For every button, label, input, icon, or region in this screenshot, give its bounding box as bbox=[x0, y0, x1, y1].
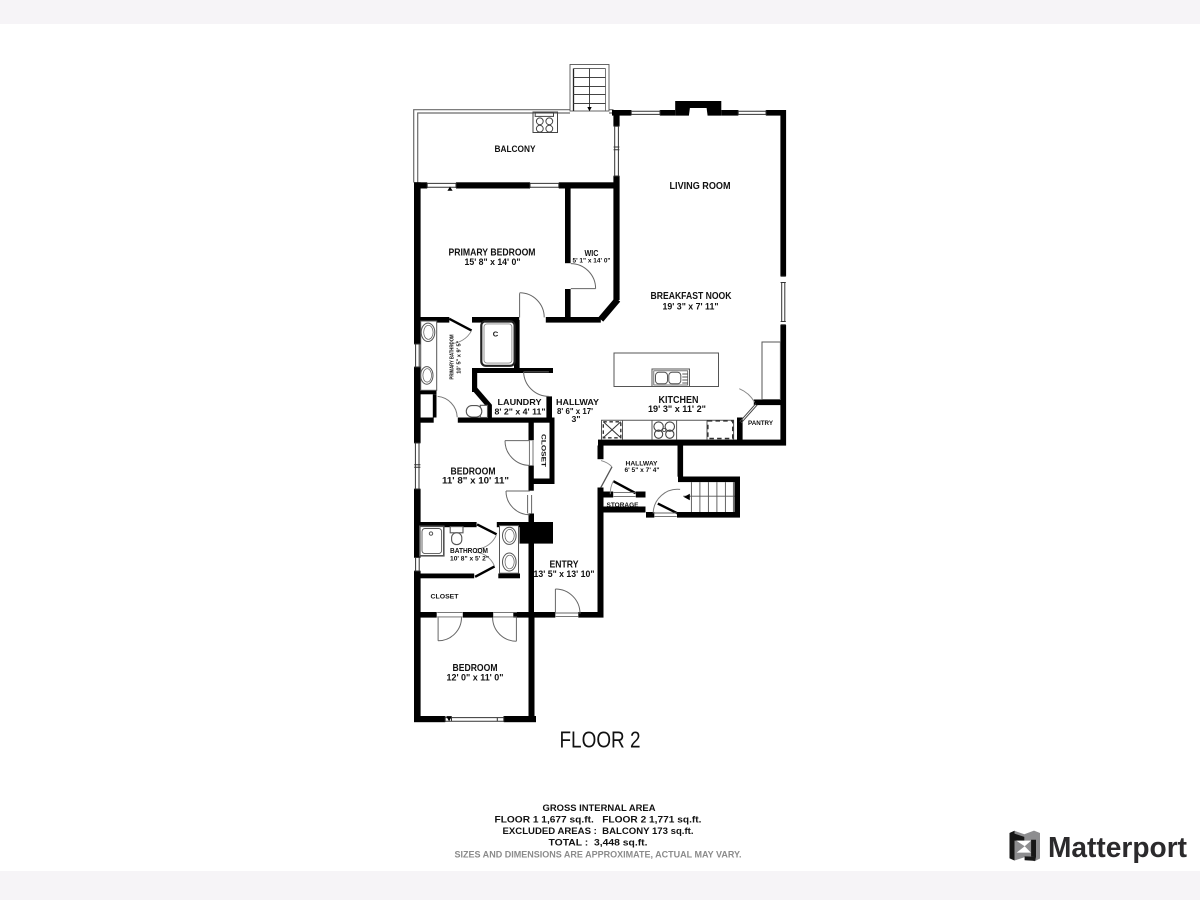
svg-text:EXCLUDED AREAS : BALCONY 173: EXCLUDED AREAS : BALCONY 173 sq.ft. bbox=[503, 826, 694, 837]
svg-text:BREAKFAST NOOK: BREAKFAST NOOK bbox=[651, 291, 732, 302]
svg-text:10' 8" x 5' 2": 10' 8" x 5' 2" bbox=[450, 555, 489, 562]
svg-text:LAUNDRY: LAUNDRY bbox=[498, 397, 542, 407]
svg-text:HALLWAY: HALLWAY bbox=[626, 460, 659, 467]
svg-text:6' 5" x 7' 4": 6' 5" x 7' 4" bbox=[625, 468, 660, 474]
svg-text:FLOOR 2: FLOOR 2 bbox=[560, 727, 641, 753]
svg-text:19' 3" x 11' 2": 19' 3" x 11' 2" bbox=[648, 404, 706, 414]
svg-text:PANTRY: PANTRY bbox=[748, 420, 774, 427]
svg-text:LIVING ROOM: LIVING ROOM bbox=[670, 181, 731, 192]
svg-text:STORAGE: STORAGE bbox=[607, 502, 639, 509]
svg-text:GROSS INTERNAL AREA: GROSS INTERNAL AREA bbox=[543, 803, 656, 814]
svg-text:5' 1" x 14' 0": 5' 1" x 14' 0" bbox=[573, 257, 611, 264]
svg-text:FLOOR 1 1,677 sq.ft. FLOOR 2: FLOOR 1 1,677 sq.ft. FLOOR 2 1,771 sq.ft… bbox=[495, 815, 702, 826]
svg-text:10' 5" x 9' 5": 10' 5" x 9' 5" bbox=[457, 340, 463, 374]
svg-text:11' 8" x 10' 11": 11' 8" x 10' 11" bbox=[442, 476, 509, 486]
svg-text:15' 8" x 14' 0": 15' 8" x 14' 0" bbox=[465, 257, 521, 267]
svg-text:BALCONY: BALCONY bbox=[495, 144, 536, 154]
svg-text:PRIMARY BATHROOM: PRIMARY BATHROOM bbox=[450, 334, 456, 379]
svg-text:HALLWAY: HALLWAY bbox=[556, 397, 599, 407]
svg-text:13' 5" x 13' 10": 13' 5" x 13' 10" bbox=[534, 569, 595, 579]
svg-text:19' 3" x 7' 11": 19' 3" x 7' 11" bbox=[663, 302, 719, 312]
svg-text:Matterport: Matterport bbox=[1048, 832, 1187, 864]
svg-text:12' 0" x 11' 0": 12' 0" x 11' 0" bbox=[447, 672, 504, 682]
svg-text:3": 3" bbox=[572, 415, 581, 424]
svg-text:C: C bbox=[493, 330, 499, 339]
svg-text:CLOSET: CLOSET bbox=[540, 434, 547, 468]
svg-text:BATHROOM: BATHROOM bbox=[450, 546, 488, 555]
svg-text:8' 2" x 4' 11": 8' 2" x 4' 11" bbox=[495, 408, 546, 417]
svg-text:TOTAL : 3,448 sq.ft.: TOTAL : 3,448 sq.ft. bbox=[549, 838, 648, 849]
svg-text:CLOSET: CLOSET bbox=[431, 594, 460, 601]
svg-text:SIZES AND DIMENSIONS ARE APPRO: SIZES AND DIMENSIONS ARE APPROXIMATE, AC… bbox=[455, 849, 742, 860]
